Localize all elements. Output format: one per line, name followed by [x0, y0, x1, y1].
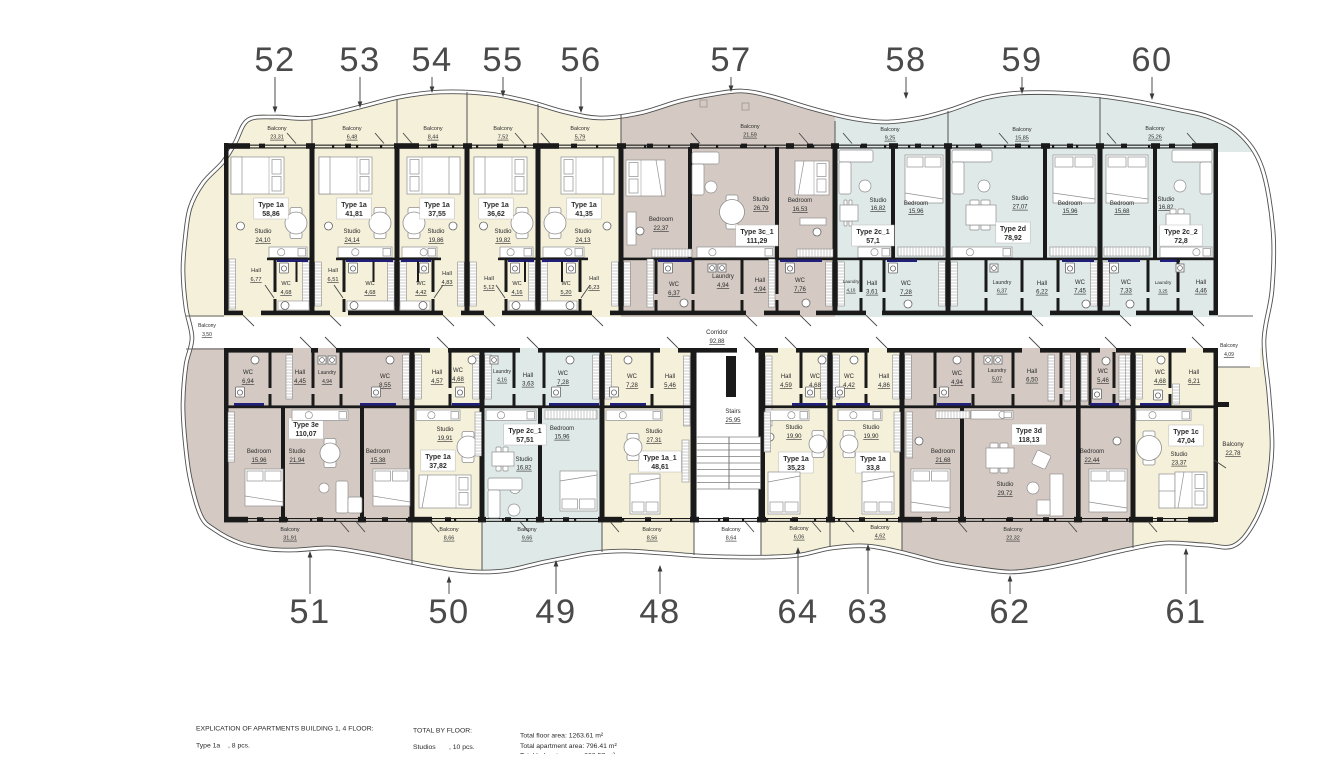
- svg-text:Type 1a: Type 1a: [783, 456, 809, 463]
- svg-text:64: 64: [777, 593, 818, 631]
- svg-text:4,62: 4,62: [875, 534, 886, 540]
- svg-text:111,29: 111,29: [747, 238, 768, 245]
- svg-text:Type 3e: Type 3e: [293, 422, 319, 429]
- svg-text:4,16: 4,16: [847, 288, 856, 293]
- svg-text:21,59: 21,59: [743, 133, 757, 139]
- svg-text:WC: WC: [844, 374, 855, 380]
- svg-text:41,35: 41,35: [575, 211, 593, 218]
- svg-text:22,37: 22,37: [653, 226, 669, 232]
- svg-text:15,96: 15,96: [251, 458, 267, 464]
- svg-text:WC: WC: [561, 281, 570, 287]
- svg-text:Balcony: Balcony: [198, 323, 216, 329]
- svg-text:4,86: 4,86: [878, 383, 890, 389]
- svg-text:61: 61: [1165, 593, 1206, 631]
- svg-text:Type 1a: Type 1a: [341, 202, 367, 209]
- svg-text:WC: WC: [365, 281, 374, 287]
- svg-text:4,42: 4,42: [416, 290, 427, 296]
- svg-text:Studio: Studio: [752, 197, 770, 203]
- svg-text:23,31: 23,31: [270, 135, 284, 141]
- svg-text:15,38: 15,38: [370, 458, 386, 464]
- svg-text:WC: WC: [380, 374, 391, 380]
- svg-text:TOTAL BY FLOOR:: TOTAL BY FLOOR:: [413, 728, 472, 735]
- svg-text:Balcony: Balcony: [439, 527, 458, 533]
- svg-text:Bedroom: Bedroom: [1110, 201, 1134, 207]
- svg-text:Type 3c_1: Type 3c_1: [740, 229, 773, 236]
- svg-text:62: 62: [989, 593, 1030, 631]
- svg-text:Studio: Studio: [645, 429, 663, 435]
- svg-text:58: 58: [885, 41, 926, 79]
- svg-text:Studio: Studio: [1157, 197, 1175, 203]
- svg-text:26,79: 26,79: [753, 206, 769, 212]
- svg-text:Bedroom: Bedroom: [788, 198, 812, 204]
- svg-text:57,51: 57,51: [516, 437, 534, 444]
- svg-text:Total apartment area: 796.41 m: Total apartment area: 796.41 m²: [520, 743, 617, 750]
- svg-text:4,09: 4,09: [1224, 352, 1234, 358]
- svg-text:4,42: 4,42: [843, 383, 855, 389]
- svg-text:59: 59: [1001, 41, 1042, 79]
- svg-text:50: 50: [428, 593, 469, 631]
- svg-text:110,07: 110,07: [295, 431, 316, 438]
- svg-text:WC: WC: [810, 374, 821, 380]
- svg-text:, 8 pcs.: , 8 pcs.: [228, 743, 250, 750]
- svg-text:47,04: 47,04: [1177, 438, 1195, 445]
- svg-text:Hall: Hall: [1196, 280, 1206, 286]
- svg-text:Bedroom: Bedroom: [1058, 201, 1082, 207]
- svg-text:Laundry: Laundry: [1155, 280, 1172, 285]
- svg-text:Corridor: Corridor: [706, 330, 728, 336]
- svg-text:Type 2c_1: Type 2c_1: [856, 229, 889, 236]
- svg-text:Studio: Studio: [996, 482, 1014, 488]
- svg-text:4,59: 4,59: [780, 383, 792, 389]
- svg-text:5,46: 5,46: [664, 383, 676, 389]
- svg-text:5,07: 5,07: [992, 377, 1002, 383]
- svg-text:6,94: 6,94: [242, 379, 254, 385]
- svg-text:Type 1a: Type 1a: [571, 202, 597, 209]
- svg-text:8,44: 8,44: [428, 135, 439, 141]
- svg-text:Type 1a: Type 1a: [196, 743, 220, 750]
- svg-text:Type 2d: Type 2d: [1000, 226, 1026, 233]
- svg-text:Studio: Studio: [494, 229, 512, 235]
- svg-text:5,12: 5,12: [484, 285, 495, 291]
- svg-text:58,86: 58,86: [262, 211, 280, 218]
- svg-text:15,85: 15,85: [1015, 136, 1029, 142]
- svg-text:WC: WC: [1155, 370, 1166, 376]
- svg-text:22,44: 22,44: [1084, 458, 1100, 464]
- svg-text:Laundry: Laundry: [493, 369, 512, 375]
- svg-text:Bedroom: Bedroom: [366, 449, 390, 455]
- svg-text:9,25: 9,25: [885, 136, 896, 142]
- svg-text:53: 53: [339, 41, 380, 79]
- svg-text:WC: WC: [1075, 280, 1086, 286]
- svg-text:Bedroom: Bedroom: [247, 449, 271, 455]
- svg-text:WC: WC: [952, 371, 963, 377]
- svg-text:Studio: Studio: [1011, 196, 1029, 202]
- svg-text:4,94: 4,94: [951, 380, 963, 386]
- svg-text:49: 49: [535, 593, 576, 631]
- svg-text:24,13: 24,13: [575, 238, 591, 244]
- svg-text:27,31: 27,31: [646, 438, 662, 444]
- svg-text:9,66: 9,66: [522, 536, 533, 542]
- svg-text:6,06: 6,06: [794, 535, 805, 541]
- svg-text:Balcony: Balcony: [423, 126, 442, 132]
- svg-text:Bedroom: Bedroom: [931, 449, 955, 455]
- svg-text:6,22: 6,22: [1036, 290, 1048, 296]
- svg-text:WC: WC: [627, 374, 638, 380]
- svg-text:19,82: 19,82: [495, 238, 511, 244]
- svg-text:60: 60: [1131, 41, 1172, 79]
- svg-text:4,57: 4,57: [431, 379, 443, 385]
- svg-text:Studio: Studio: [785, 425, 803, 431]
- svg-text:Laundry: Laundry: [318, 370, 337, 376]
- svg-text:63: 63: [847, 593, 888, 631]
- svg-text:Type 1a: Type 1a: [258, 202, 284, 209]
- svg-text:Type 2c_2: Type 2c_2: [1164, 229, 1197, 236]
- svg-text:WC: WC: [1121, 280, 1132, 286]
- svg-text:Hall: Hall: [1037, 281, 1047, 287]
- svg-text:Studio: Studio: [343, 229, 361, 235]
- svg-text:8,56: 8,56: [647, 536, 658, 542]
- svg-text:6,23: 6,23: [589, 285, 600, 291]
- svg-text:19,90: 19,90: [786, 434, 802, 440]
- svg-text:Studio: Studio: [574, 229, 592, 235]
- svg-text:6,37: 6,37: [997, 289, 1007, 295]
- svg-text:Balcony: Balcony: [721, 527, 740, 533]
- svg-text:4,16: 4,16: [512, 290, 523, 296]
- svg-text:7,28: 7,28: [626, 383, 638, 389]
- svg-text:22,78: 22,78: [1225, 451, 1241, 457]
- svg-text:7,33: 7,33: [1120, 289, 1132, 295]
- svg-text:WC: WC: [281, 281, 290, 287]
- svg-text:16,82: 16,82: [516, 466, 532, 472]
- svg-text:8,64: 8,64: [726, 536, 737, 542]
- svg-text:16,53: 16,53: [792, 207, 808, 213]
- svg-text:Balcony: Balcony: [880, 127, 899, 133]
- svg-text:Hall: Hall: [484, 276, 494, 282]
- svg-text:Balcony: Balcony: [1220, 343, 1238, 349]
- svg-text:Balcony: Balcony: [280, 527, 299, 533]
- svg-text:78,92: 78,92: [1004, 235, 1022, 242]
- svg-text:7,28: 7,28: [900, 290, 912, 296]
- svg-text:4,68: 4,68: [1154, 379, 1166, 385]
- svg-text:15,68: 15,68: [1114, 209, 1130, 215]
- svg-text:WC: WC: [243, 370, 254, 376]
- svg-text:57: 57: [710, 41, 751, 79]
- svg-text:Balcony: Balcony: [642, 527, 661, 533]
- svg-text:4,45: 4,45: [294, 379, 306, 385]
- svg-text:Hall: Hall: [665, 374, 675, 380]
- svg-text:4,83: 4,83: [442, 280, 453, 286]
- svg-text:6,37: 6,37: [668, 291, 680, 297]
- svg-text:6,50: 6,50: [1026, 378, 1038, 384]
- svg-text:37,55: 37,55: [428, 211, 446, 218]
- svg-text:Hall: Hall: [879, 374, 889, 380]
- svg-text:92,88: 92,88: [709, 339, 725, 345]
- svg-text:3,25: 3,25: [1159, 289, 1168, 294]
- svg-text:3,63: 3,63: [522, 382, 534, 388]
- svg-text:Studio: Studio: [1170, 452, 1188, 458]
- svg-text:15,96: 15,96: [1062, 209, 1078, 215]
- svg-text:23,37: 23,37: [1171, 461, 1187, 467]
- svg-text:6,51: 6,51: [328, 277, 339, 283]
- svg-text:4,94: 4,94: [754, 287, 766, 293]
- svg-text:31,91: 31,91: [283, 536, 297, 542]
- svg-text:3,61: 3,61: [866, 290, 878, 296]
- svg-text:7,76: 7,76: [794, 287, 806, 293]
- svg-text:Type 1a: Type 1a: [425, 454, 451, 461]
- svg-text:51: 51: [289, 593, 330, 631]
- svg-text:7,28: 7,28: [557, 380, 569, 386]
- svg-text:Balcony: Balcony: [1003, 527, 1022, 533]
- svg-text:Laundry: Laundry: [988, 368, 1007, 374]
- svg-text:Bedroom: Bedroom: [550, 426, 574, 432]
- svg-text:6,77: 6,77: [251, 277, 262, 283]
- svg-text:Hall: Hall: [589, 276, 599, 282]
- svg-text:15,96: 15,96: [554, 435, 570, 441]
- svg-text:48,61: 48,61: [651, 464, 669, 471]
- svg-text:Laundry: Laundry: [843, 279, 860, 284]
- svg-text:Balcony: Balcony: [493, 126, 512, 132]
- svg-text:Studio: Studio: [427, 229, 445, 235]
- svg-text:21,68: 21,68: [935, 458, 951, 464]
- svg-text:27,07: 27,07: [1012, 205, 1028, 211]
- svg-text:WC: WC: [558, 371, 569, 377]
- svg-text:Balcony: Balcony: [1012, 127, 1031, 133]
- svg-text:WC: WC: [795, 278, 806, 284]
- svg-text:Hall: Hall: [523, 373, 533, 379]
- svg-text:Hall: Hall: [1027, 369, 1037, 375]
- svg-text:Studio: Studio: [288, 449, 306, 455]
- svg-text:19,90: 19,90: [863, 434, 879, 440]
- svg-text:4,94: 4,94: [322, 379, 332, 385]
- svg-text:5,20: 5,20: [561, 290, 572, 296]
- svg-text:, 10 pcs.: , 10 pcs.: [449, 744, 475, 751]
- svg-text:Stairs: Stairs: [725, 409, 740, 415]
- svg-text:29,72: 29,72: [997, 491, 1013, 497]
- svg-text:Balcony: Balcony: [267, 126, 286, 132]
- svg-text:Bedroom: Bedroom: [649, 217, 673, 223]
- svg-text:Studio: Studio: [436, 427, 454, 433]
- svg-text:Hall: Hall: [867, 281, 877, 287]
- svg-text:Type 1a: Type 1a: [483, 202, 509, 209]
- svg-text:Studio: Studio: [862, 425, 880, 431]
- svg-text:WC: WC: [416, 281, 425, 287]
- svg-text:WC: WC: [669, 282, 680, 288]
- svg-text:15,96: 15,96: [908, 209, 924, 215]
- svg-text:WC: WC: [453, 368, 464, 374]
- svg-text:57,1: 57,1: [866, 238, 880, 245]
- svg-text:56: 56: [560, 41, 601, 79]
- svg-text:EXPLICATION OF APARTMENTS BUIL: EXPLICATION OF APARTMENTS BUILDING 1, 4 …: [196, 726, 374, 733]
- svg-text:Balcony: Balcony: [1145, 126, 1164, 132]
- svg-text:118,13: 118,13: [1018, 437, 1039, 444]
- svg-text:Hall: Hall: [755, 278, 765, 284]
- svg-text:25,26: 25,26: [1148, 135, 1162, 141]
- svg-text:Balcony: Balcony: [570, 126, 589, 132]
- svg-text:52: 52: [254, 41, 295, 79]
- svg-text:5,79: 5,79: [575, 135, 586, 141]
- svg-text:8,66: 8,66: [444, 536, 455, 542]
- svg-text:7,52: 7,52: [498, 135, 509, 141]
- svg-text:Total floor area: 1263.61 m²: Total floor area: 1263.61 m²: [520, 733, 604, 740]
- svg-text:Studio: Studio: [254, 229, 272, 235]
- svg-text:Balcony: Balcony: [342, 126, 361, 132]
- svg-text:Balcony: Balcony: [789, 526, 808, 532]
- svg-text:Laundry: Laundry: [993, 280, 1012, 286]
- svg-text:4,68: 4,68: [452, 377, 464, 383]
- svg-text:41,81: 41,81: [345, 211, 363, 218]
- svg-text:Bedroom: Bedroom: [904, 201, 928, 207]
- svg-text:22,32: 22,32: [1006, 536, 1020, 542]
- svg-text:Type 1a_1: Type 1a_1: [643, 455, 676, 462]
- svg-text:Hall: Hall: [442, 271, 452, 277]
- svg-text:Laundry: Laundry: [712, 274, 734, 280]
- svg-text:Hall: Hall: [781, 374, 791, 380]
- svg-text:Hall: Hall: [432, 370, 442, 376]
- svg-text:4,68: 4,68: [281, 290, 292, 296]
- svg-text:19,86: 19,86: [428, 238, 444, 244]
- svg-text:48: 48: [639, 593, 680, 631]
- svg-text:Balcony: Balcony: [517, 527, 536, 533]
- svg-text:Type 1c: Type 1c: [1173, 429, 1199, 436]
- svg-text:Type 3d: Type 3d: [1016, 428, 1042, 435]
- svg-text:7,45: 7,45: [1074, 289, 1086, 295]
- svg-text:Balcony: Balcony: [870, 525, 889, 531]
- svg-text:Studios: Studios: [413, 744, 436, 751]
- svg-text:Type 1a: Type 1a: [860, 456, 886, 463]
- svg-text:4,46: 4,46: [1195, 289, 1207, 295]
- svg-text:WC: WC: [512, 281, 521, 287]
- svg-text:55: 55: [482, 41, 523, 79]
- svg-text:Balcony: Balcony: [740, 124, 759, 130]
- svg-text:Bedroom: Bedroom: [1080, 449, 1104, 455]
- svg-text:Hall: Hall: [1189, 370, 1199, 376]
- svg-text:6,48: 6,48: [347, 135, 358, 141]
- svg-text:Studio: Studio: [515, 457, 533, 463]
- svg-text:Studio: Studio: [869, 198, 887, 204]
- svg-text:4,68: 4,68: [365, 290, 376, 296]
- svg-text:35,23: 35,23: [787, 465, 805, 472]
- svg-text:72,8: 72,8: [1174, 238, 1188, 245]
- svg-text:6,21: 6,21: [1188, 379, 1200, 385]
- svg-text:54: 54: [411, 41, 452, 79]
- svg-text:Hall: Hall: [251, 268, 261, 274]
- svg-text:8,55: 8,55: [379, 383, 391, 389]
- svg-text:5,46: 5,46: [1097, 378, 1109, 384]
- svg-text:Type 2c_1: Type 2c_1: [508, 428, 541, 435]
- svg-text:4,94: 4,94: [717, 283, 729, 289]
- svg-text:16,82: 16,82: [870, 206, 886, 212]
- svg-text:24,10: 24,10: [255, 238, 271, 244]
- svg-text:21,94: 21,94: [289, 458, 305, 464]
- svg-text:WC: WC: [1098, 369, 1109, 375]
- svg-text:Balcony: Balcony: [1222, 442, 1243, 448]
- svg-text:33,8: 33,8: [866, 465, 880, 472]
- svg-text:Hall: Hall: [328, 268, 338, 274]
- svg-text:Type 1a: Type 1a: [424, 202, 450, 209]
- svg-text:3,50: 3,50: [202, 332, 212, 338]
- svg-text:WC: WC: [901, 281, 912, 287]
- svg-text:24,14: 24,14: [344, 238, 360, 244]
- svg-text:25,95: 25,95: [725, 418, 741, 424]
- svg-text:Hall: Hall: [295, 370, 305, 376]
- svg-text:37,82: 37,82: [429, 463, 447, 470]
- svg-text:19,91: 19,91: [437, 436, 453, 442]
- svg-text:4,16: 4,16: [497, 378, 507, 384]
- svg-text:36,62: 36,62: [487, 211, 505, 218]
